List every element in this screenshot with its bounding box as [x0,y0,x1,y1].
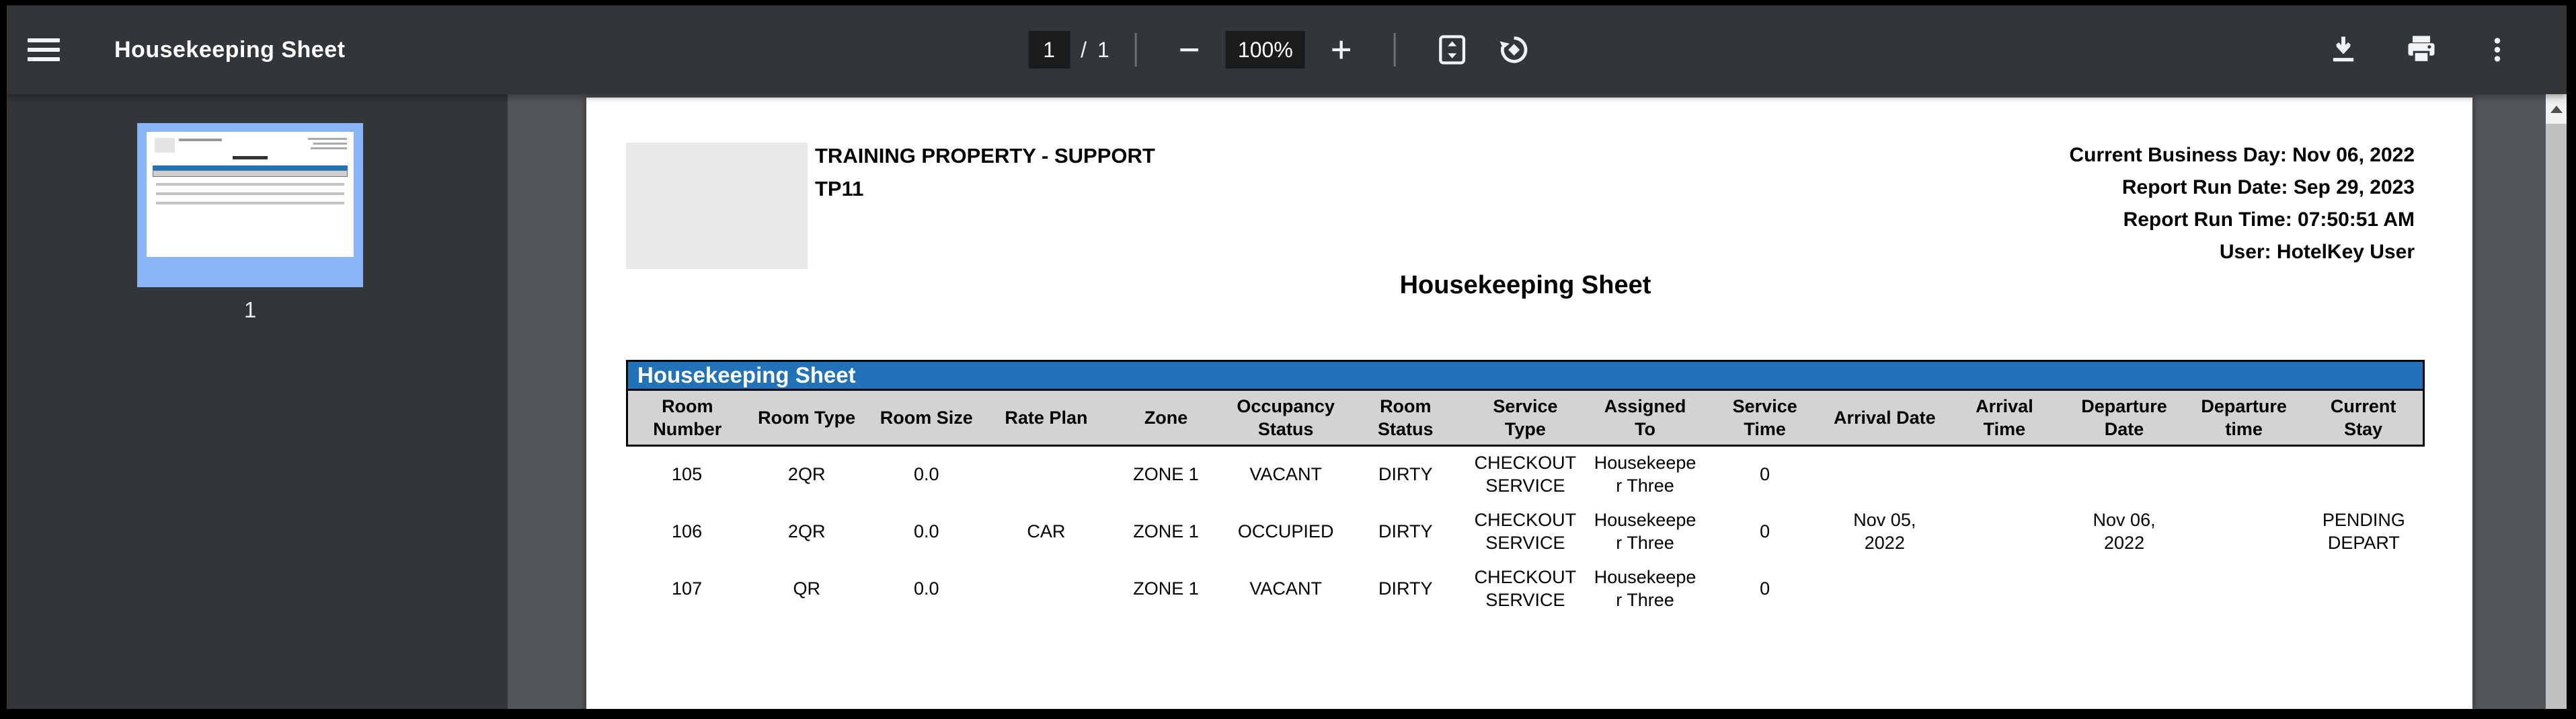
cell-departure_date [2064,560,2184,617]
cell-room_size: 0.0 [867,445,986,502]
thumbnail-preview-row [156,202,344,204]
fit-to-page-icon [1435,32,1470,67]
thumbnail-preview-title [233,156,268,159]
cell-assigned_to: Housekeeper Three [1586,502,1705,560]
column-header-room_status: Room Status [1345,391,1465,445]
column-header-room_number: Room Number [627,391,747,445]
report-run-time: Report Run Time: 07:50:51 AM [2069,204,2415,236]
zoom-out-button[interactable] [1163,5,1216,94]
property-name: TRAINING PROPERTY - SUPPORT [815,139,1155,172]
cell-current_stay: PENDING DEPART [2304,502,2423,560]
zoom-out-icon [1176,36,1203,63]
cell-room_size: 0.0 [867,560,986,617]
cell-room_number: 106 [627,502,747,560]
page-thumbnail[interactable] [137,123,363,287]
table-title: Housekeeping Sheet [637,363,856,388]
cell-arrival_time [1945,445,2064,502]
cell-departure_date [2064,445,2184,502]
menu-button[interactable] [7,5,81,94]
document-title: Housekeeping Sheet [114,37,345,63]
cell-occupancy_status: VACANT [1226,445,1345,502]
print-button[interactable] [2390,5,2452,94]
thumbnail-preview-text [179,139,222,141]
report-user: User: HotelKey User [2069,236,2415,268]
thumbnail-sidebar: 1 [7,94,508,709]
cell-arrival_date: Nov 05, 2022 [1825,502,1945,560]
cell-current_stay [2304,560,2423,617]
scrollbar-thumb[interactable] [2546,124,2567,709]
column-header-rate_plan: Rate Plan [986,391,1106,445]
cell-text: Housekeeper Three [1593,451,1698,497]
cell-room_status: DIRTY [1345,445,1465,502]
cell-arrival_time [1945,560,2064,617]
cell-room_status: DIRTY [1345,502,1465,560]
thumbnail-preview-row [156,192,344,195]
cell-room_status: DIRTY [1345,560,1465,617]
column-header-service_type: Service Type [1465,391,1585,445]
cell-departure_date: Nov 06, 2022 [2064,502,2184,560]
thumbnail-preview-tablehead [153,170,348,177]
document-viewer: TRAINING PROPERTY - SUPPORT TP11 Current… [508,94,2546,709]
thumbnail-preview-text [311,147,347,149]
cell-service_time: 0 [1705,560,1825,617]
cell-zone: ZONE 1 [1106,502,1226,560]
cell-text: Housekeeper Three [1593,508,1698,554]
rotate-counterclockwise-icon [1497,32,1532,67]
report-run-date: Report Run Date: Sep 29, 2023 [2069,172,2415,204]
table-row: 1062QR0.0CARZONE 1OCCUPIEDDIRTYCHECKOUT … [627,502,2424,560]
viewer-content: 1 TRAINING PROPERTY - SUPPORT TP11 Curre… [7,94,2567,709]
scroll-up-icon [2550,106,2563,113]
zoom-in-icon [1328,36,1355,63]
column-header-arrival_time: Arrival Time [1945,391,2064,445]
pdf-page: TRAINING PROPERTY - SUPPORT TP11 Current… [586,98,2472,709]
vertical-scrollbar [2546,94,2567,709]
cell-departure_time [2184,445,2304,502]
cell-assigned_to: Housekeeper Three [1586,560,1705,617]
scroll-up-button[interactable] [2546,94,2567,124]
cell-room_number: 105 [627,445,747,502]
report-meta: Current Business Day: Nov 06, 2022 Repor… [2069,139,2415,268]
column-header-current_stay: Current Stay [2304,391,2423,445]
report-table: Room NumberRoom TypeRoom SizeRate PlanZo… [626,391,2425,617]
download-icon [2326,32,2361,67]
cell-arrival_time [1945,502,2064,560]
cell-room_number: 107 [627,560,747,617]
toolbar-divider [1394,33,1396,67]
cell-departure_time [2184,560,2304,617]
column-header-arrival_date: Arrival Date [1825,391,1945,445]
table-row: 1052QR0.0ZONE 1VACANTDIRTYCHECKOUT SERVI… [627,445,2424,502]
pdf-toolbar: Housekeeping Sheet / 1 100% [7,5,2567,94]
thumbnail-page-number: 1 [137,297,363,323]
cell-service_time: 0 [1705,502,1825,560]
cell-room_type: QR [747,560,867,617]
column-header-room_type: Room Type [747,391,867,445]
zoom-level-display[interactable]: 100% [1226,31,1305,69]
thumbnail-preview-text [308,138,347,140]
cell-text: Housekeeper Three [1593,566,1698,611]
toolbar-divider [1135,33,1137,67]
column-header-departure_date: Departure Date [2064,391,2184,445]
page-separator: / [1081,38,1087,63]
more-options-button[interactable] [2468,5,2526,94]
thumbnail-preview-text [313,143,347,145]
cell-service_type: CHECKOUT SERVICE [1465,445,1585,502]
property-code: TP11 [815,172,1155,205]
column-header-room_size: Room Size [867,391,986,445]
cell-arrival_date [1825,560,1945,617]
page-total: 1 [1097,38,1109,63]
cell-occupancy_status: VACANT [1226,560,1345,617]
thumbnail-preview-row [156,183,344,186]
cell-assigned_to: Housekeeper Three [1586,445,1705,502]
cell-arrival_date [1825,445,1945,502]
thumbnail-preview-logo [155,138,175,153]
cell-zone: ZONE 1 [1106,445,1226,502]
cell-departure_time [2184,502,2304,560]
table-row: 107QR0.0ZONE 1VACANTDIRTYCHECKOUT SERVIC… [627,560,2424,617]
housekeeping-table: Housekeeping Sheet Room NumberRoom TypeR… [626,360,2425,617]
column-header-service_time: Service Time [1705,391,1825,445]
property-header: TRAINING PROPERTY - SUPPORT TP11 [815,139,1155,205]
pdf-viewer-window: Housekeeping Sheet / 1 100% [7,5,2567,709]
column-header-occupancy_status: Occupancy Status [1226,391,1345,445]
current-business-day: Current Business Day: Nov 06, 2022 [2069,139,2415,172]
property-logo-placeholder [626,143,808,269]
column-header-zone: Zone [1106,391,1226,445]
zoom-in-button[interactable] [1315,5,1368,94]
report-title: Housekeeping Sheet [626,271,2425,300]
print-icon [2404,32,2439,67]
page-zoom-controls: / 1 100% [1028,5,1545,94]
table-title-bar: Housekeeping Sheet [626,360,2425,391]
menu-icon [28,38,60,61]
cell-service_type: CHECKOUT SERVICE [1465,502,1585,560]
cell-room_size: 0.0 [867,502,986,560]
rotate-button[interactable] [1483,5,1545,94]
page-number-input[interactable] [1028,31,1070,69]
table-header-row: Room NumberRoom TypeRoom SizeRate PlanZo… [627,391,2424,445]
cell-rate_plan [986,445,1106,502]
cell-current_stay [2304,445,2423,502]
thumbnail-preview [147,132,354,257]
cell-service_type: CHECKOUT SERVICE [1465,560,1585,617]
cell-zone: ZONE 1 [1106,560,1226,617]
more-options-icon [2482,34,2513,65]
cell-occupancy_status: OCCUPIED [1226,502,1345,560]
column-header-assigned_to: Assigned To [1586,391,1705,445]
thumbnail-preview-tablebar [153,165,348,170]
toolbar-actions [2312,5,2567,94]
column-header-departure_time: Departure time [2184,391,2304,445]
cell-rate_plan: CAR [986,502,1106,560]
cell-rate_plan [986,560,1106,617]
download-button[interactable] [2312,5,2374,94]
cell-room_type: 2QR [747,502,867,560]
cell-room_type: 2QR [747,445,867,502]
fit-to-page-button[interactable] [1421,5,1483,94]
cell-service_time: 0 [1705,445,1825,502]
